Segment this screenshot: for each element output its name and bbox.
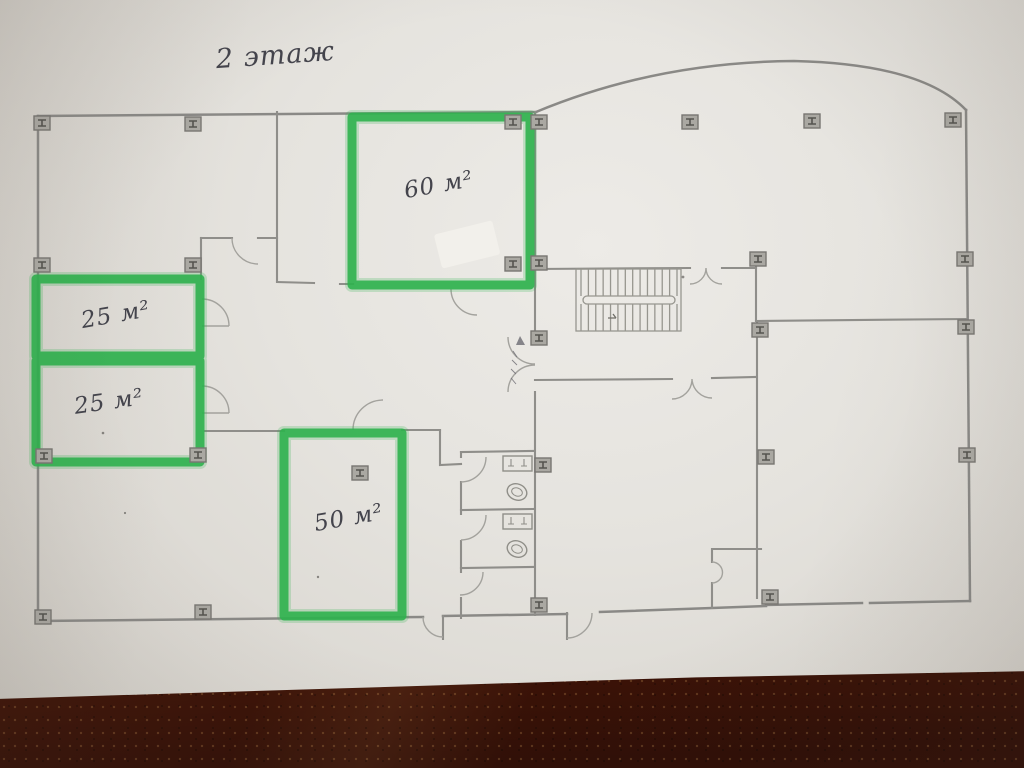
room-50-label: 50 м² [312, 499, 385, 537]
column-i-beam-icon [959, 448, 975, 462]
column-i-beam-icon [36, 449, 52, 463]
column-i-beam-icon [804, 114, 820, 128]
double-door-arc [690, 268, 722, 284]
sink-unit [503, 514, 532, 529]
door-arc [451, 289, 477, 315]
column-i-beam-icon [35, 610, 51, 624]
outer-walls [38, 61, 970, 621]
stair-outline [576, 269, 681, 331]
sink-unit [503, 456, 532, 471]
toilet-bowl [510, 543, 523, 554]
column-i-beam-icon [190, 448, 206, 462]
column-i-beam-icon [505, 115, 521, 129]
column-i-beam-icon [957, 252, 973, 266]
interior-walls [201, 112, 966, 639]
tape-patch [434, 220, 501, 268]
double-door-arc [672, 379, 712, 399]
wc-fixtures [503, 456, 532, 560]
column-i-beam-icon [958, 320, 974, 334]
door-arc [712, 562, 723, 583]
column-i-beam-icon [762, 590, 778, 604]
column-i-beam-icon [945, 113, 961, 127]
column-i-beam-icon [195, 605, 211, 619]
column-i-beam-icon [750, 252, 766, 266]
column-i-beam-icon [505, 257, 521, 271]
room-60-label: 60 м² [402, 166, 475, 204]
floor-title: 2 этаж [214, 36, 336, 75]
toilet [505, 481, 529, 503]
door-arc [460, 572, 483, 595]
door-arc [232, 238, 258, 264]
column-i-beam-icon [185, 258, 201, 272]
column-i-beam-icon [185, 117, 201, 131]
column-i-beam-icon [352, 466, 368, 480]
structural-columns [34, 113, 975, 624]
column-i-beam-icon [34, 116, 50, 130]
room-25-upper-label: 25 м² [78, 296, 152, 334]
column-i-beam-icon [531, 331, 547, 345]
photo-of-floor-plan: 2 этаж 60 м² 25 м² 25 м² 50 м² [0, 0, 1024, 768]
toilet-bowl [510, 486, 523, 497]
column-i-beam-icon [535, 458, 551, 472]
toilet [505, 538, 529, 560]
column-i-beam-icon [34, 258, 50, 272]
column-i-beam-icon [531, 115, 547, 129]
room-25-lower-label: 25 м² [72, 384, 146, 420]
stair-direction-arrow [608, 314, 616, 318]
door-arc [461, 515, 486, 540]
door-arc [353, 400, 383, 430]
stair-handrail [583, 296, 675, 304]
stair-treads [581, 269, 677, 331]
door-arc [461, 457, 486, 482]
column-i-beam-icon [752, 323, 768, 337]
entrance-door-arc [567, 613, 592, 638]
entrance-door-arc [423, 617, 443, 637]
column-i-beam-icon [682, 115, 698, 129]
column-i-beam-icon [531, 256, 547, 270]
column-i-beam-icon [758, 450, 774, 464]
floor-plan-drawing: 2 этаж 60 м² 25 м² 25 м² 50 м² [0, 0, 1024, 768]
column-i-beam-icon [531, 598, 547, 612]
arched-wall [536, 61, 966, 112]
staircase [576, 269, 681, 331]
